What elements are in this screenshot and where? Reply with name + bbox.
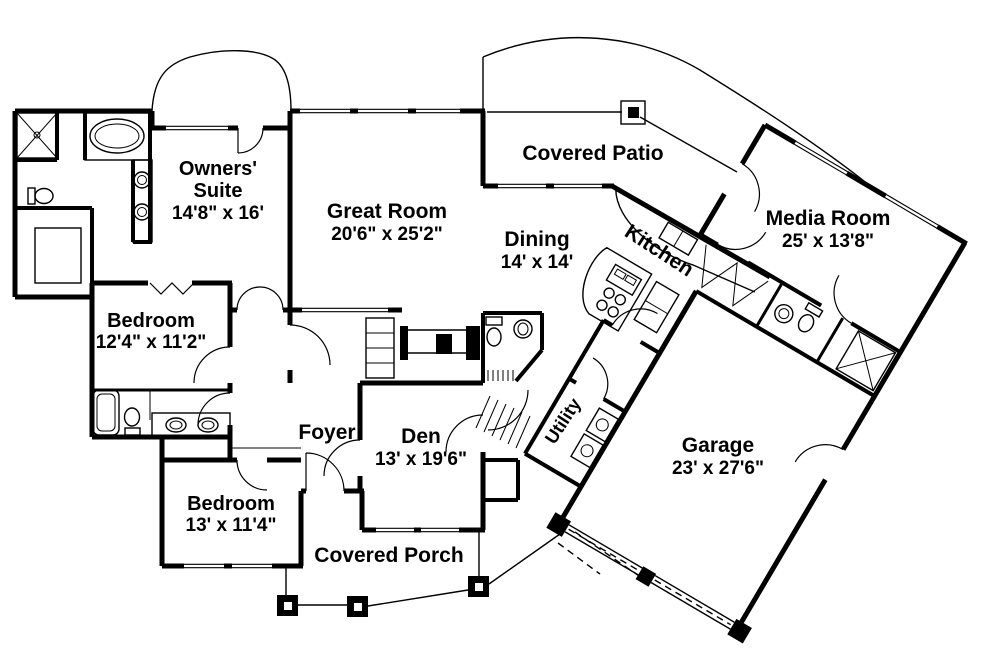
room-label-garage: Garage 23' x 27'6": [672, 434, 764, 479]
wing-walls: [537, 125, 967, 631]
room-dims: 13' x 11'4": [186, 515, 277, 536]
room-dims: 23' x 27'6": [672, 458, 764, 479]
room-dims: 13' x 19'6": [375, 449, 467, 470]
room-name: Bedroom: [186, 493, 277, 515]
room-name: Covered Porch: [314, 544, 463, 568]
room-label-den: Den 13' x 19'6": [375, 425, 467, 470]
room-label-covered-patio: Covered Patio: [522, 142, 663, 166]
porch-post: [347, 596, 368, 617]
master-toilet-icon: [28, 188, 53, 204]
room-name: Media Room: [766, 207, 891, 231]
room-label-bedroom-lower: Bedroom 13' x 11'4": [186, 493, 277, 537]
hall-bathtub-icon: [93, 390, 119, 435]
room-label-dining: Dining 14' x 14': [501, 228, 573, 273]
wing-bath-toilet-icon: [795, 303, 823, 335]
room-name: Great Room: [327, 200, 447, 224]
stairs-hatch: [476, 396, 530, 448]
hall-vanity-icon: [152, 413, 230, 437]
room-name: Dining: [501, 228, 573, 252]
hall-toilet-icon: [125, 408, 141, 435]
kitchen-island-cooktop: [569, 245, 651, 331]
room-label-bedroom-upper: Bedroom 12'4" x 11'2": [96, 310, 207, 354]
pantry-shelves: [366, 318, 394, 378]
porch-post: [277, 595, 298, 616]
room-name: Garage: [672, 434, 764, 458]
fireplace-icon: [400, 326, 480, 360]
floorplan-page: Owners' Suite 14'8" x 16' Great Room 20'…: [0, 0, 1000, 666]
master-bathtub-icon: [85, 113, 150, 160]
wing-shower-icon: [836, 331, 895, 391]
room-dims: 12'4" x 11'2": [96, 332, 207, 353]
wing-bath-sink-icon: [772, 301, 797, 326]
room-dims: 14' x 14': [501, 252, 573, 273]
room-name: Den: [375, 425, 467, 449]
room-name: Covered Patio: [522, 142, 663, 166]
room-label-covered-porch: Covered Porch: [314, 544, 463, 568]
room-label-owners-suite: Owners' Suite 14'8" x 16': [172, 158, 264, 224]
room-dims: 14'8" x 16': [172, 203, 264, 224]
kitchen-fridge: [634, 282, 679, 333]
walkin-closet-island: [35, 228, 81, 283]
room-name: Bedroom: [96, 310, 207, 332]
garage-door: [546, 512, 752, 643]
patio-post: [621, 101, 645, 124]
master-shower-icon: [17, 113, 57, 158]
room-dims: 25' x 13'8": [766, 231, 891, 252]
powder-room: [483, 313, 542, 381]
room-name: Foyer: [298, 421, 355, 445]
kitchen-counter: [601, 189, 764, 302]
room-name: Owners': [172, 158, 264, 180]
porch-post: [468, 576, 489, 597]
room-label-media-room: Media Room 25' x 13'8": [766, 207, 891, 252]
room-label-great-room: Great Room 20'6" x 25'2": [327, 200, 447, 245]
room-label-foyer: Foyer: [298, 421, 355, 445]
room-name: Suite: [172, 180, 264, 202]
room-dims: 20'6" x 25'2": [327, 224, 447, 245]
